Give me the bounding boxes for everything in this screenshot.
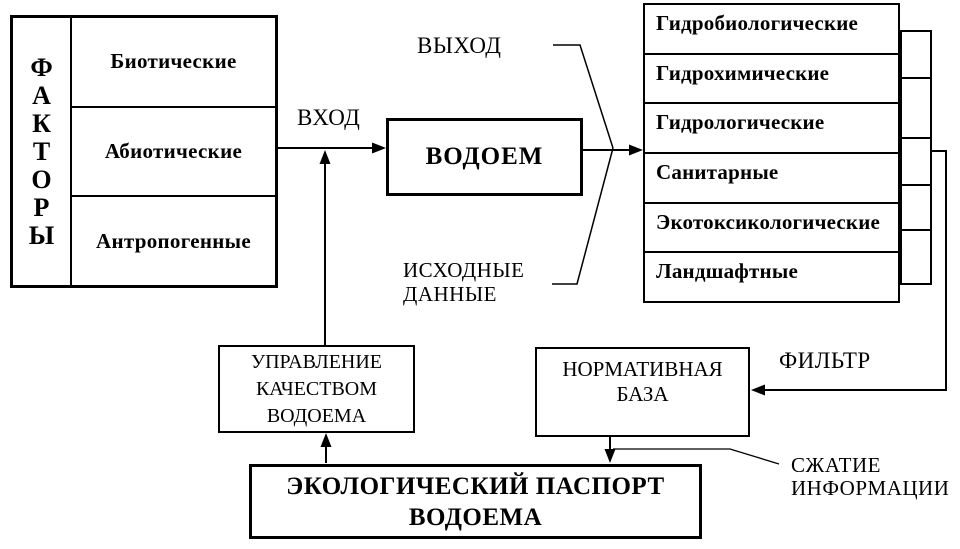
indicator-stack: Гидробиологические Гидрохимические Гидро… bbox=[643, 3, 900, 303]
shadow-divider bbox=[902, 229, 930, 231]
indicator-landscape: Ландшафтные bbox=[645, 253, 898, 301]
normative-base-line2: БАЗА bbox=[537, 382, 748, 407]
source-data-line1: ИСХОДНЫЕ bbox=[403, 258, 524, 282]
indicator-hydrobiological: Гидробиологические bbox=[645, 5, 898, 55]
passport-box: ЭКОЛОГИЧЕСКИЙ ПАСПОРТ ВОДОЕМА bbox=[249, 464, 702, 539]
indicator-ecotoxicological: Экотоксикологические bbox=[645, 204, 898, 254]
feedback-arrow bbox=[320, 150, 331, 345]
indicator-hydrochemical: Гидрохимические bbox=[645, 55, 898, 105]
normative-base-line1: НОРМАТИВНАЯ bbox=[537, 357, 748, 382]
indicator-sanitary: Санитарные bbox=[645, 154, 898, 204]
source-data-line2: ДАННЫЕ bbox=[403, 282, 524, 306]
indicator-hydrological: Гидрологические bbox=[645, 104, 898, 154]
passport-to-management-arrow bbox=[321, 433, 332, 463]
normative-to-passport-arrow bbox=[605, 437, 616, 463]
passport-line2: ВОДОЕМА bbox=[409, 502, 542, 533]
normative-base-box: НОРМАТИВНАЯ БАЗА bbox=[535, 347, 750, 437]
compression-line2: ИНФОРМАЦИИ bbox=[791, 477, 949, 500]
source-data-label: ИСХОДНЫЕ ДАННЫЕ bbox=[403, 258, 524, 306]
factors-items: Биотические Абиотические Антропогенные bbox=[72, 18, 275, 285]
compression-line1: СЖАТИЕ bbox=[791, 454, 949, 477]
waterbody-box: ВОДОЕМ bbox=[386, 118, 583, 196]
output-label: ВЫХОД bbox=[417, 33, 502, 59]
compression-label: СЖАТИЕ ИНФОРМАЦИИ bbox=[791, 454, 949, 500]
factor-item-anthropogenic: Антропогенные bbox=[72, 197, 275, 285]
factors-letter: Р bbox=[34, 194, 50, 222]
shadow-divider bbox=[902, 77, 930, 79]
input-arrow bbox=[278, 143, 386, 154]
shadow-divider bbox=[902, 137, 930, 139]
compression-callout-line bbox=[613, 449, 779, 464]
factors-letter: Ф bbox=[30, 54, 52, 82]
factors-vertical-label: Ф А К Т О Р Ы bbox=[13, 18, 72, 285]
management-line3: ВОДОЕМА bbox=[267, 403, 366, 430]
factors-letter: Т bbox=[33, 138, 50, 166]
filter-label: ФИЛЬТР bbox=[779, 348, 871, 374]
indicator-stack-shadow bbox=[900, 30, 932, 285]
shadow-divider bbox=[902, 184, 930, 186]
input-label: ВХОД bbox=[297, 105, 360, 131]
factors-letter: А bbox=[32, 82, 51, 110]
factors-letter: Ы bbox=[29, 222, 55, 250]
factor-item-biotic: Биотические bbox=[72, 18, 275, 108]
waterbody-label: ВОДОЕМ bbox=[426, 143, 544, 171]
factors-letter: О bbox=[31, 166, 51, 194]
output-arrow bbox=[583, 145, 643, 156]
management-line1: УПРАВЛЕНИЕ bbox=[251, 349, 382, 376]
management-box: УПРАВЛЕНИЕ КАЧЕСТВОМ ВОДОЕМА bbox=[218, 345, 415, 433]
management-line2: КАЧЕСТВОМ bbox=[256, 376, 377, 403]
factors-box: Ф А К Т О Р Ы Биотические Абиотические А… bbox=[10, 15, 278, 288]
factors-letter: К bbox=[32, 110, 51, 138]
factor-item-abiotic: Абиотические bbox=[72, 108, 275, 198]
diagram-canvas: Ф А К Т О Р Ы Биотические Абиотические А… bbox=[0, 0, 960, 549]
passport-line1: ЭКОЛОГИЧЕСКИЙ ПАСПОРТ bbox=[286, 471, 664, 502]
